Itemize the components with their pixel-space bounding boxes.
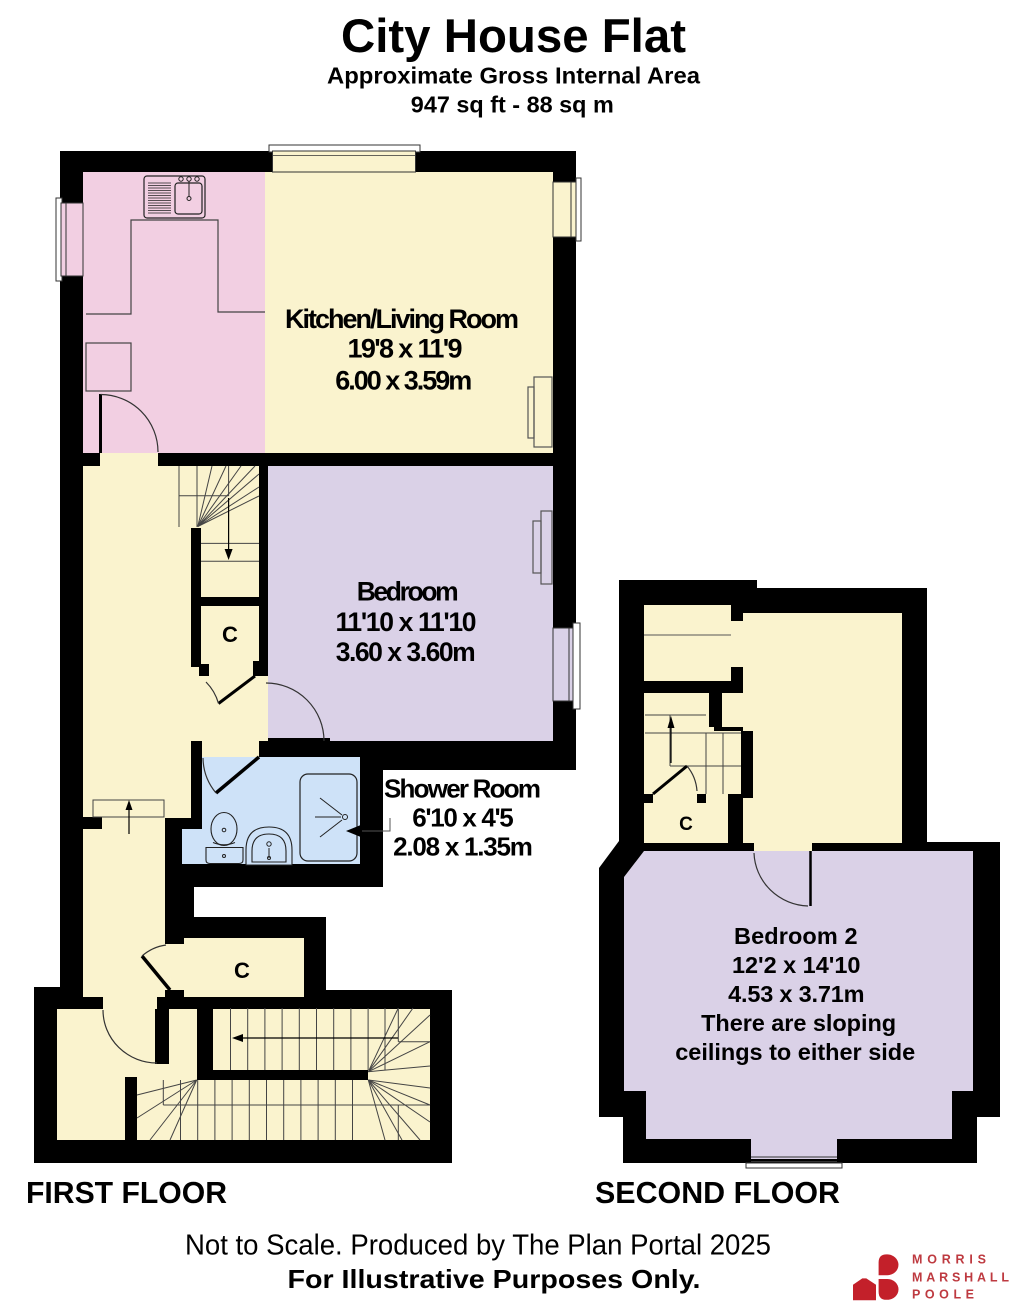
svg-text:C: C	[679, 814, 693, 835]
svg-text:4.53 x 3.71m: 4.53 x 3.71m	[728, 981, 864, 1007]
svg-text:City House Flat: City House Flat	[341, 9, 686, 62]
svg-text:ceilings to either side: ceilings to either side	[675, 1039, 915, 1065]
svg-text:Shower Room: Shower Room	[384, 774, 541, 804]
svg-text:2.08 x 1.35m: 2.08 x 1.35m	[393, 832, 533, 862]
svg-text:SECOND FLOOR: SECOND FLOOR	[595, 1176, 840, 1210]
svg-text:3.60 x 3.60m: 3.60 x 3.60m	[336, 637, 476, 667]
svg-text:There are sloping: There are sloping	[701, 1010, 896, 1036]
svg-text:Approximate Gross Internal Are: Approximate Gross Internal Area	[327, 63, 701, 89]
svg-text:6.00 x 3.59m: 6.00 x 3.59m	[335, 365, 472, 395]
svg-text:19'8 x 11'9: 19'8 x 11'9	[348, 333, 463, 363]
svg-text:12'2 x 14'10: 12'2 x 14'10	[732, 952, 861, 978]
svg-text:Kitchen/Living Room: Kitchen/Living Room	[285, 304, 519, 334]
svg-text:947 sq ft - 88 sq m: 947 sq ft - 88 sq m	[411, 92, 614, 118]
svg-text:For Illustrative Purposes Only: For Illustrative Purposes Only.	[288, 1264, 701, 1294]
svg-text:Bedroom: Bedroom	[357, 577, 459, 607]
svg-text:6'10 x 4'5: 6'10 x 4'5	[412, 802, 514, 832]
svg-text:POOLE: POOLE	[912, 1288, 974, 1302]
svg-text:11'10 x 11'10: 11'10 x 11'10	[336, 607, 477, 637]
svg-text:Bedroom 2: Bedroom 2	[734, 923, 858, 949]
svg-text:Not to Scale. Produced by The: Not to Scale. Produced by The Plan Porta…	[185, 1230, 771, 1262]
svg-text:C: C	[222, 622, 238, 647]
svg-text:MORRIS: MORRIS	[912, 1253, 986, 1267]
svg-text:MARSHALL: MARSHALL	[912, 1271, 1009, 1285]
svg-text:C: C	[234, 958, 250, 983]
svg-text:FIRST FLOOR: FIRST FLOOR	[26, 1176, 227, 1210]
